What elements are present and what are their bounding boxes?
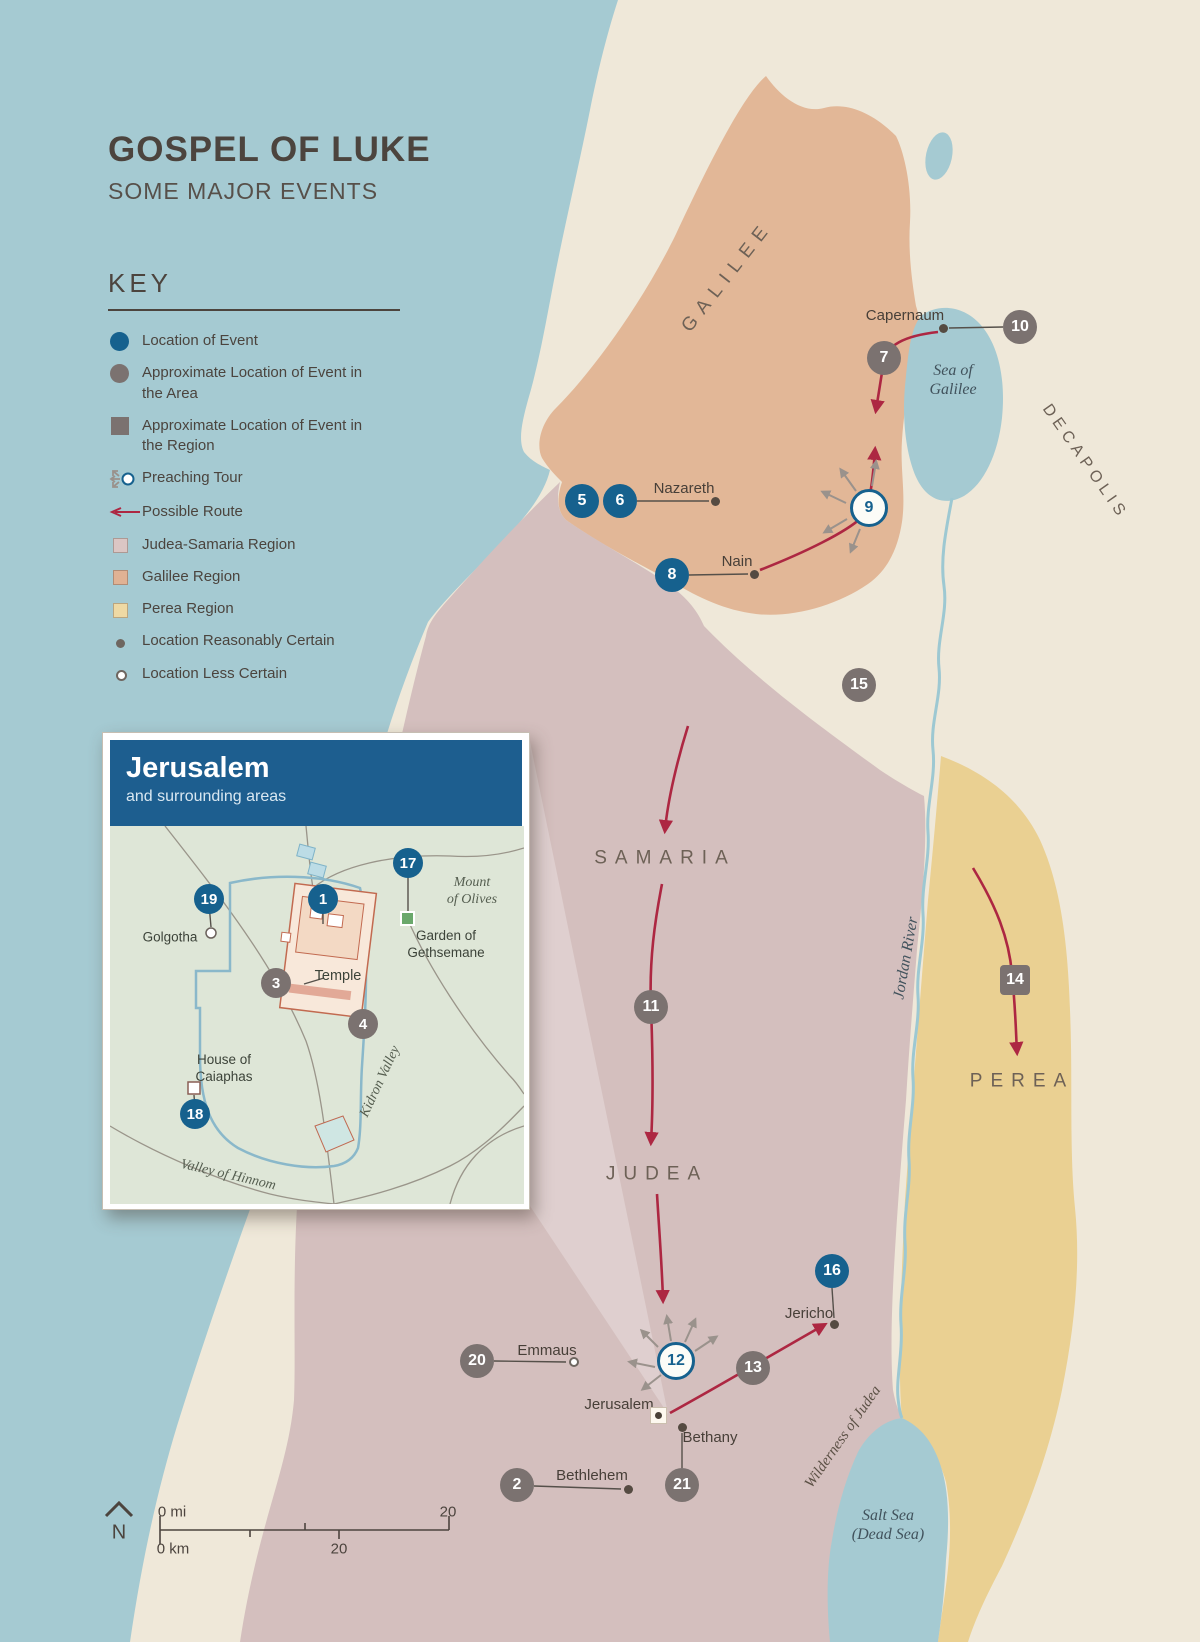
place-dot-filled bbox=[750, 570, 759, 579]
label-jordan-river: Jordan River bbox=[889, 915, 922, 1000]
marker-5: 5 bbox=[565, 484, 599, 518]
label-decapolis: DECAPOLIS bbox=[1038, 401, 1132, 524]
map-page: GOSPEL OF LUKE SOME MAJOR EVENTS KEY Loc… bbox=[0, 0, 1200, 1642]
place-label-jerusalem: Jerusalem bbox=[584, 1396, 653, 1414]
marker-8: 8 bbox=[655, 558, 689, 592]
marker-21: 21 bbox=[665, 1468, 699, 1502]
place-label-bethany: Bethany bbox=[682, 1429, 737, 1447]
place-label-nain: Nain bbox=[722, 553, 753, 571]
label-perea: PEREA bbox=[970, 1071, 1074, 1094]
marker-12: 12 bbox=[657, 1342, 695, 1380]
marker-9: 9 bbox=[850, 489, 888, 527]
marker-7: 7 bbox=[867, 341, 901, 375]
marker-10: 10 bbox=[1003, 310, 1037, 344]
map-label-layer: GALILEEDECAPOLISSAMARIAJUDEAPEREASea of … bbox=[0, 0, 1200, 1642]
scale-km-start: 0 km bbox=[157, 1541, 190, 1558]
place-label-bethlehem: Bethlehem bbox=[556, 1467, 628, 1485]
place-label-nazareth: Nazareth bbox=[654, 480, 715, 498]
label-sea-of-galilee: Sea of Galilee bbox=[929, 361, 976, 399]
marker-11: 11 bbox=[634, 990, 668, 1024]
marker-13: 13 bbox=[736, 1351, 770, 1385]
place-dot-filled bbox=[624, 1485, 633, 1494]
scale-mi-end: 20 bbox=[440, 1504, 457, 1521]
label-salt-sea-dead-sea: Salt Sea (Dead Sea) bbox=[852, 1506, 924, 1544]
scale-mi-start: 0 mi bbox=[158, 1504, 186, 1521]
marker-14: 14 bbox=[1000, 965, 1030, 995]
label-wilderness-of-judea: Wilderness of Judea bbox=[801, 1382, 885, 1491]
place-dot-filled bbox=[830, 1320, 839, 1329]
place-dot-filled bbox=[711, 497, 720, 506]
north-label: N bbox=[112, 1522, 126, 1545]
place-label-jericho: Jericho bbox=[785, 1305, 833, 1323]
place-dot-filled bbox=[939, 324, 948, 333]
label-galilee: GALILEE bbox=[677, 217, 778, 338]
label-judea: JUDEA bbox=[606, 1164, 708, 1187]
marker-16: 16 bbox=[815, 1254, 849, 1288]
place-dot-filled bbox=[678, 1423, 687, 1432]
marker-2: 2 bbox=[500, 1468, 534, 1502]
label-samaria: SAMARIA bbox=[594, 848, 736, 871]
marker-15: 15 bbox=[842, 668, 876, 702]
place-dot-open bbox=[569, 1357, 579, 1367]
place-dot-square bbox=[650, 1407, 667, 1424]
place-label-emmaus: Emmaus bbox=[517, 1342, 576, 1360]
marker-20: 20 bbox=[460, 1344, 494, 1378]
place-label-capernaum: Capernaum bbox=[866, 307, 944, 325]
marker-6: 6 bbox=[603, 484, 637, 518]
scale-km-end: 20 bbox=[331, 1541, 348, 1558]
